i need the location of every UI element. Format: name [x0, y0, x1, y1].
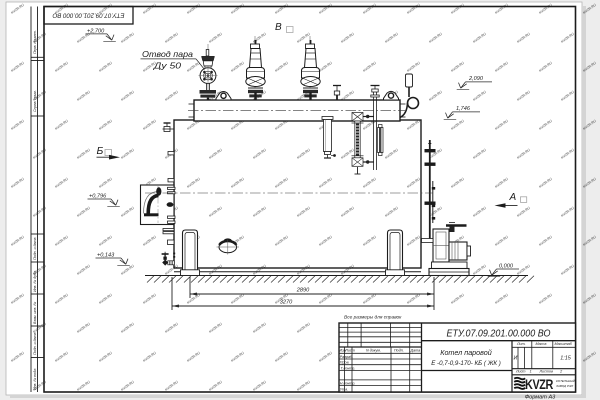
svg-text:Е -0,7-0,9-170- КБ ( ЖК ): Е -0,7-0,9-170- КБ ( ЖК ) [431, 360, 501, 367]
svg-text:Все размеры для справок: Все размеры для справок [344, 314, 402, 320]
svg-text:1,746: 1,746 [456, 106, 471, 112]
svg-text:Отвод пара: Отвод пара [142, 50, 194, 59]
svg-text:Н.контр.: Н.контр. [340, 382, 356, 386]
svg-text:KVZR: KVZR [525, 376, 553, 392]
svg-text:И: И [514, 356, 518, 362]
svg-text:В: В [275, 22, 282, 33]
svg-text:2890: 2890 [296, 288, 310, 294]
svg-text:Б: Б [97, 145, 104, 157]
svg-text:КОТЕЛЬНЫЙ: КОТЕЛЬНЫЙ [556, 379, 576, 383]
svg-text:Т.контр.: Т.контр. [341, 366, 356, 370]
svg-text:Инв. № дубл.: Инв. № дубл. [33, 270, 37, 292]
svg-text:Листов 2: Листов 2 [539, 370, 563, 374]
svg-text:Лит.: Лит. [516, 342, 526, 346]
svg-text:Масса: Масса [536, 342, 547, 346]
svg-text:Формат А3: Формат А3 [525, 395, 556, 400]
svg-text:Ду 50: Ду 50 [153, 62, 182, 71]
svg-text:N докум.: N докум. [366, 349, 381, 353]
svg-text:1:15: 1:15 [560, 356, 571, 362]
svg-text:ЗАВОД РЭП: ЗАВОД РЭП [556, 384, 574, 388]
svg-text:ЕТУ.07.09.201.00.000 ВО: ЕТУ.07.09.201.00.000 ВО [447, 329, 551, 340]
svg-text:ЕТУ.07.09.201.00.000 ВО: ЕТУ.07.09.201.00.000 ВО [53, 11, 125, 18]
svg-text:Утв.: Утв. [340, 387, 348, 391]
svg-text:Справ. прим.: Справ. прим. [33, 90, 37, 112]
svg-text:Пров.: Пров. [340, 361, 350, 365]
svg-text:Инв. № подл.: Инв. № подл. [33, 368, 37, 390]
svg-text:Подп. и дата: Подп. и дата [33, 333, 37, 356]
svg-text:Лист 1: Лист 1 [515, 370, 532, 374]
svg-text:+2,700: +2,700 [87, 28, 105, 34]
svg-text:Перв. примен.: Перв. примен. [33, 30, 37, 54]
svg-text:Разраб.: Разраб. [340, 355, 353, 359]
svg-text:Подп. и дата: Подп. и дата [33, 238, 37, 261]
svg-text:Дата: Дата [410, 349, 421, 353]
svg-text:Взам. инв. №: Взам. инв. № [33, 302, 37, 324]
svg-text:+0,796: +0,796 [89, 193, 107, 199]
svg-text:Лист: Лист [344, 349, 355, 353]
svg-text:3270: 3270 [280, 300, 293, 306]
svg-text:Котел паровой: Котел паровой [440, 348, 492, 357]
svg-text:+0,143: +0,143 [97, 252, 115, 258]
svg-text:0,000: 0,000 [499, 263, 514, 269]
svg-text:А: А [509, 192, 517, 203]
svg-text:Масштаб: Масштаб [555, 342, 573, 346]
svg-text:2,090: 2,090 [468, 76, 484, 82]
svg-text:Подп.: Подп. [394, 349, 404, 353]
